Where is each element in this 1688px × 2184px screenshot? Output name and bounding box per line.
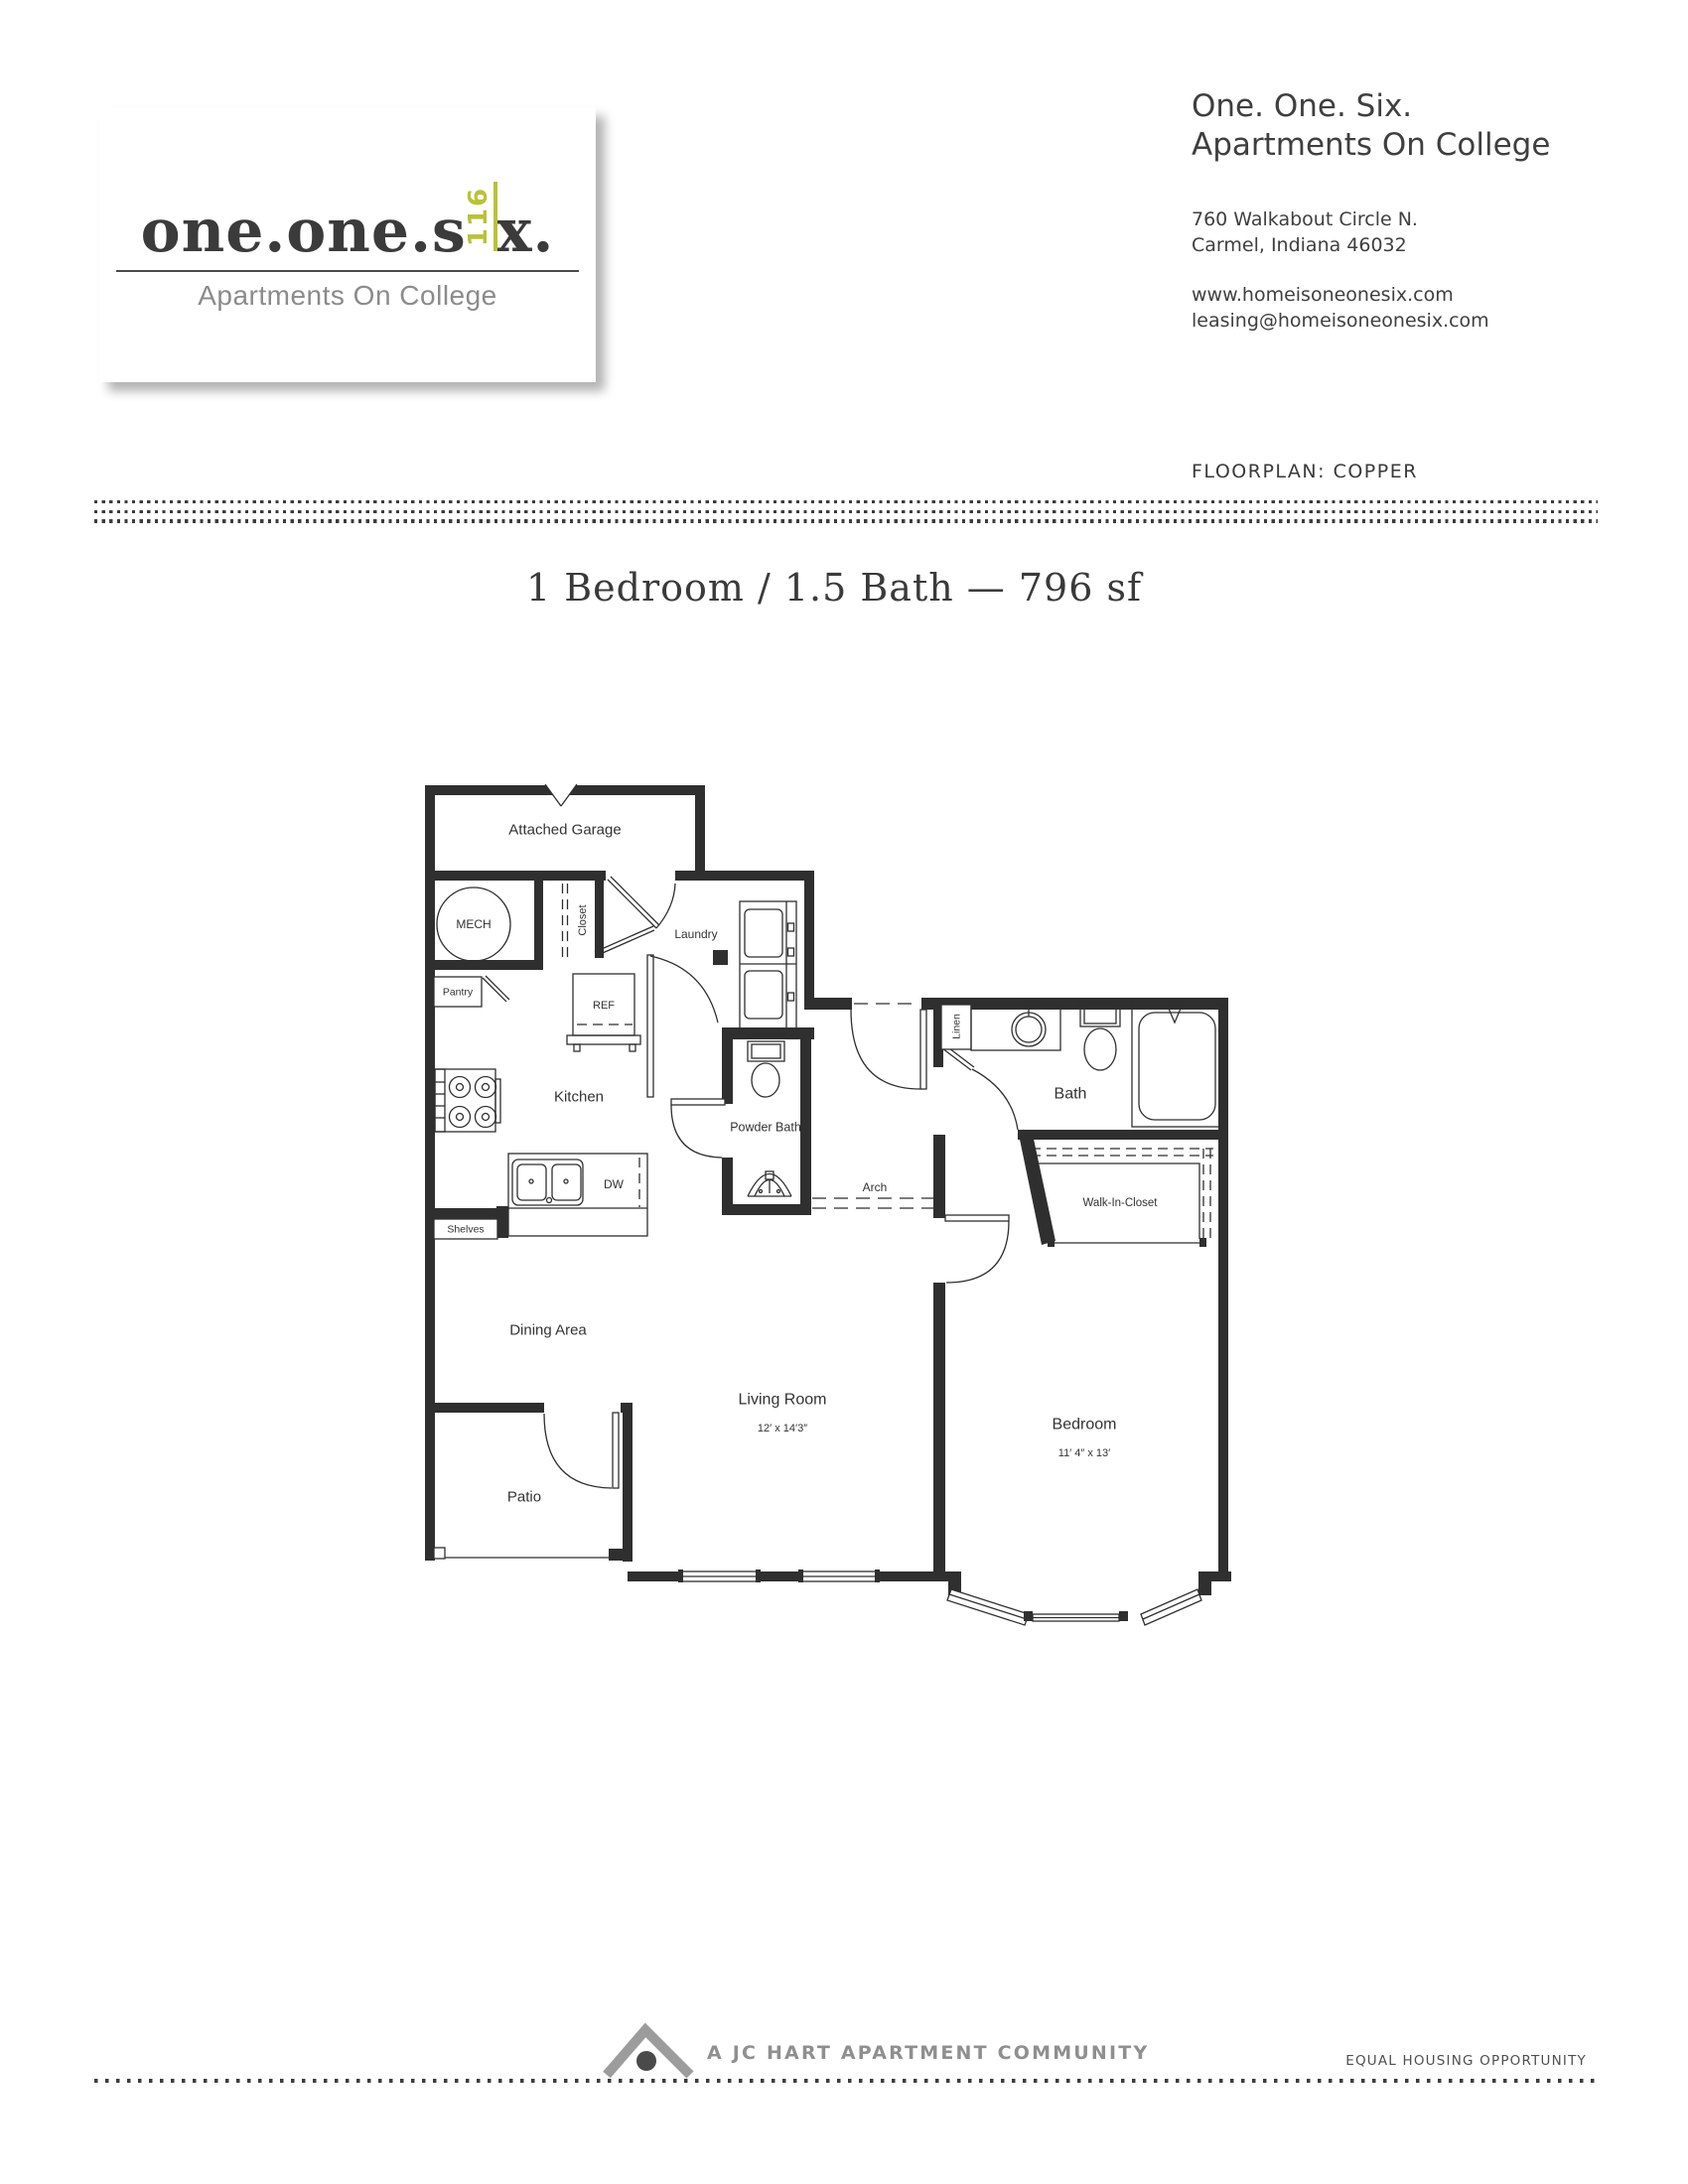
logo-rotated-number-wrap: 116 (463, 182, 498, 251)
room-label-walk-in-closet: Walk-In-Closet (1083, 1197, 1159, 1209)
room-label-powder-bath: Powder Bath (730, 1120, 801, 1134)
logo-card: one.one.s116x. Apartments On College (99, 107, 596, 382)
room-label-patio: Patio (507, 1488, 541, 1505)
floorplan-name-label: FLOORPLAN: COPPER (1192, 461, 1418, 482)
dotted-row (94, 519, 1598, 522)
room-label-linen: Linen (951, 1014, 963, 1039)
address-line1: 760 Walkabout Circle N. (1192, 206, 1550, 232)
property-name: One. One. Six. Apartments On College (1192, 87, 1550, 165)
room-label-pantry: Pantry (443, 987, 474, 999)
dotted-divider-bottom (94, 2079, 1598, 2083)
room-label-laundry: Laundry (674, 927, 717, 941)
dotted-row (94, 500, 1598, 503)
bathtub (1132, 1006, 1222, 1127)
refrigerator (567, 974, 640, 1051)
jc-hart-house-icon (601, 2021, 700, 2079)
powder-bath-fixtures (748, 1041, 791, 1196)
room-label-closet: Closet (577, 904, 589, 935)
room-label-ref: REF (593, 1000, 615, 1012)
property-name-line1: One. One. Six. (1192, 87, 1550, 126)
room-label-mech: MECH (456, 917, 491, 931)
logo-word-start: one.one.s (141, 197, 467, 266)
logo-wordmark: one.one.s116x. (99, 182, 596, 260)
washer-dryer-stack (740, 901, 796, 1028)
room-label-dining-area: Dining Area (509, 1321, 587, 1338)
room-label-bath: Bath (1055, 1086, 1087, 1103)
contact-block: One. One. Six. Apartments On College 760… (1192, 87, 1550, 334)
property-links: www.homeisoneonesix.com leasing@homeison… (1192, 282, 1550, 334)
logo-divider (116, 270, 579, 272)
property-name-line2: Apartments On College (1192, 126, 1550, 165)
dotted-row (94, 510, 1598, 513)
logo-rotated-number: 116 (464, 182, 497, 251)
room-label-attached-garage: Attached Garage (508, 821, 621, 838)
address-line2: Carmel, Indiana 46032 (1192, 232, 1550, 258)
dimension-living-room: 12′ x 14′3″ (758, 1423, 807, 1434)
room-label-arch: Arch (863, 1180, 888, 1194)
page-title: 1 Bedroom / 1.5 Bath — 796 sf (0, 566, 1668, 610)
bath-toilet (1080, 1002, 1120, 1070)
dimension-bedroom: 11′ 4″ x 13′ (1058, 1447, 1110, 1459)
logo-word-end: x. (496, 197, 555, 266)
stove (435, 1069, 500, 1132)
room-label-living-room: Living Room (739, 1392, 827, 1409)
room-label-shelves: Shelves (447, 1224, 484, 1236)
dotted-divider-top (94, 500, 1598, 529)
website-text: www.homeisoneonesix.com (1192, 282, 1550, 308)
flyer-page: one.one.s116x. Apartments On College One… (0, 0, 1688, 2184)
property-address: 760 Walkabout Circle N. Carmel, Indiana … (1192, 206, 1550, 258)
footer-community-text: A JC HART APARTMENT COMMUNITY (707, 2042, 1149, 2064)
kitchen-sink-counter (508, 1154, 647, 1236)
room-label-bedroom: Bedroom (1053, 1417, 1117, 1433)
floorplan-drawing: Attached Garage MECH Closet Laundry Pant… (397, 754, 1251, 1638)
email-text: leasing@homeisoneonesix.com (1192, 308, 1550, 334)
equal-housing-text: EQUAL HOUSING OPPORTUNITY (1345, 2053, 1587, 2069)
room-label-dw: DW (604, 1177, 625, 1191)
doors-and-openings (483, 877, 1213, 1488)
logo-tagline: Apartments On College (99, 280, 596, 312)
room-label-kitchen: Kitchen (554, 1088, 604, 1105)
